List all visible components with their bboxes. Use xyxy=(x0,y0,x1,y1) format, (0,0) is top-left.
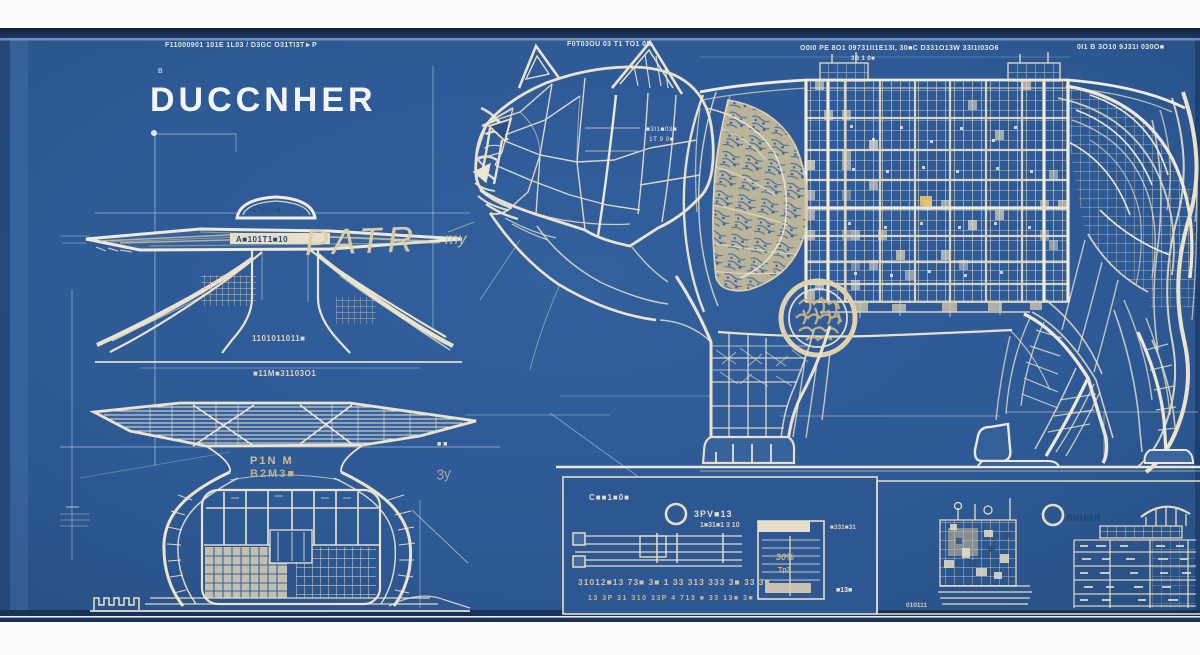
svg-text:■13■: ■13■ xyxy=(836,587,852,594)
svg-text:1101011011■: 1101011011■ xyxy=(252,334,306,343)
svg-text:30%: 30% xyxy=(776,552,794,562)
svg-text:31012■13 73■ 3■ 1 33 313 333 3: 31012■13 73■ 3■ 1 33 313 333 3■ 33 3■ xyxy=(578,577,771,587)
svg-text:■3I1■03■: ■3I1■03■ xyxy=(646,126,677,133)
svg-text:my: my xyxy=(445,231,467,248)
svg-text:■ ■: ■ ■ xyxy=(437,441,447,448)
svg-text:0I1 B 3O10 9J31I 030O■: 0I1 B 3O10 9J31I 030O■ xyxy=(1077,44,1164,51)
svg-text:■331■31: ■331■31 xyxy=(830,524,856,531)
svg-text:B2M3■: B2M3■ xyxy=(250,468,296,480)
svg-text:O0I0 PE 8O1 09731II1E13I, 30■C: O0I0 PE 8O1 09731II1E13I, 30■C D331O13W … xyxy=(800,45,999,52)
svg-text:DUCCNHER: DUCCNHER xyxy=(150,81,377,119)
svg-text:1TM10■: 1TM10■ xyxy=(252,207,281,214)
svg-text:C■■1■0■: C■■1■0■ xyxy=(589,493,630,502)
svg-text:PATR: PATR xyxy=(304,218,420,263)
svg-text:1■31■1 3 10: 1■31■1 3 10 xyxy=(700,522,740,529)
svg-text:010111: 010111 xyxy=(906,602,927,609)
svg-text:Tp3: Tp3 xyxy=(778,567,791,574)
svg-text:ЛИНИЯ: ЛИНИЯ xyxy=(1066,513,1101,523)
svg-text:1T 9 0■: 1T 9 0■ xyxy=(649,136,674,143)
svg-text:3PV■13: 3PV■13 xyxy=(694,509,732,519)
svg-text:B: B xyxy=(158,68,163,75)
svg-text:P1N M: P1N M xyxy=(250,455,294,467)
svg-text:3B 1 0■: 3B 1 0■ xyxy=(851,56,875,62)
svg-text:F0T03OU 03 T1 TO1 0B: F0T03OU 03 T1 TO1 0B xyxy=(567,41,652,48)
svg-text:F11000901 101E 1L03 / D3GC O31: F11000901 101E 1L03 / D3GC O31TI3T►P xyxy=(165,42,317,49)
svg-text:13 3P 31 310 33P 4 713 ■: 13 3P 31 310 33P 4 713 ■ 33 13■ 3■ xyxy=(588,595,754,602)
svg-text:■11M■31103O1: ■11M■31103O1 xyxy=(253,369,316,378)
svg-text:A■101T1■10: A■101T1■10 xyxy=(236,235,288,244)
